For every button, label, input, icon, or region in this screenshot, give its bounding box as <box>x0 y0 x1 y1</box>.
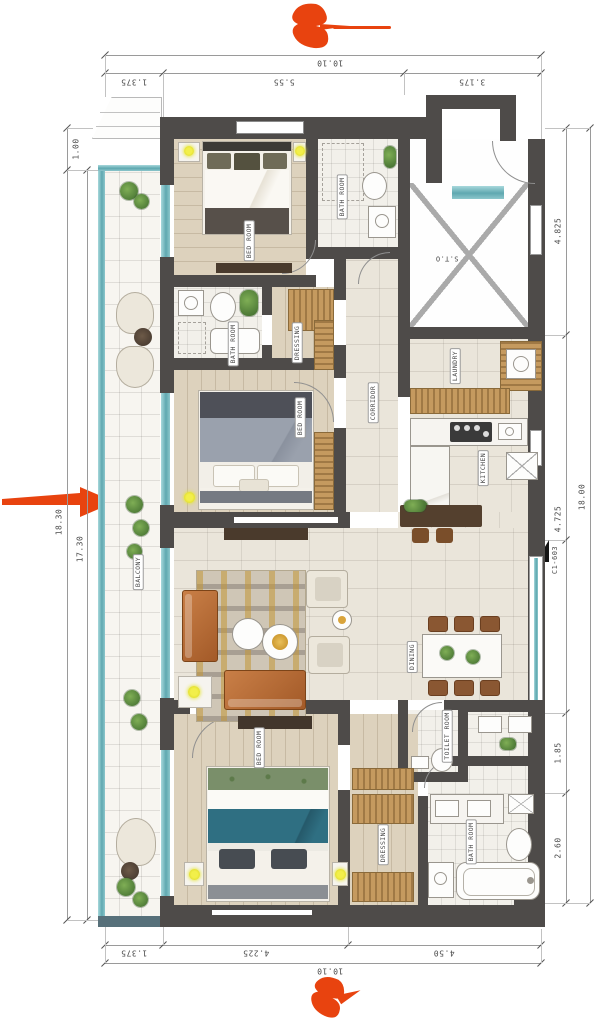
plant <box>134 194 149 209</box>
plant <box>440 646 454 660</box>
sofa-vertical <box>182 590 218 662</box>
lamp <box>184 492 195 503</box>
toilet1 <box>362 172 387 200</box>
dim-bottom-seg1: 1.375 <box>121 949 148 958</box>
dim-right-overall: 18.00 <box>578 484 587 511</box>
toilet-label: TOILET ROOM <box>442 709 453 762</box>
tv-console-bed3 <box>238 716 312 729</box>
dining-chair <box>428 680 448 696</box>
wardrobe <box>352 794 414 824</box>
entry-glass <box>452 186 504 199</box>
kitchen-label: KITCHEN <box>478 450 489 486</box>
bedroom1-label: BED ROOM <box>244 221 255 262</box>
bar-stool <box>436 528 453 543</box>
duct-shaft <box>508 794 534 814</box>
dim-left-line-inner <box>87 170 88 920</box>
lamp <box>295 146 305 156</box>
dining-chair <box>480 616 500 632</box>
tv-console-living <box>224 528 308 540</box>
plant <box>133 520 149 536</box>
unit-code: C1-603 <box>551 546 559 574</box>
dim-top-seg2: 5.55 <box>273 78 294 87</box>
balcony-lounge-chair <box>116 818 156 866</box>
wardrobe <box>352 768 414 790</box>
plant <box>131 714 147 730</box>
dining-table <box>422 634 502 678</box>
sink3 <box>467 800 491 817</box>
shower2 <box>178 322 206 354</box>
plant <box>133 892 148 907</box>
bedroom2-label: BED ROOM <box>295 398 306 439</box>
wardrobe <box>352 872 414 902</box>
lamp <box>188 686 200 698</box>
tv-bed2 <box>234 517 338 523</box>
dining-chair <box>454 616 474 632</box>
bed3 <box>206 766 330 902</box>
door-arc-toilet <box>412 702 442 732</box>
balcony-end-cap <box>98 916 162 927</box>
plant <box>466 650 480 664</box>
floor-plan: 10.10 1.375 5.55 3.175 1.375 4.225 4.50 … <box>0 0 605 1024</box>
bar-stool <box>412 528 429 543</box>
window-bottom <box>212 910 312 915</box>
dim-left-outer: 18.30 <box>55 509 64 536</box>
dim-right-seg3: 1.85 <box>554 742 563 763</box>
storage-label: S.T.O <box>433 254 460 263</box>
dim-top-overall: 10.10 <box>317 59 344 68</box>
balcony-door-bed3 <box>161 750 170 898</box>
dining-chair <box>454 680 474 696</box>
dressing2-label: DRESSING <box>378 825 389 866</box>
balcony-lounge-chair <box>116 292 154 334</box>
bathtub <box>456 862 540 900</box>
bathroom2-label: BATH ROOM <box>228 322 239 367</box>
fridge <box>506 452 538 480</box>
laundry-label: LAUNDRY <box>450 348 461 384</box>
dim-bottom-segment-line <box>105 945 541 946</box>
dim-top-overall-line <box>105 55 541 56</box>
dining-chair <box>428 616 448 632</box>
kitchen-counter-left <box>410 446 450 508</box>
corridor-label: CORRIDOR <box>368 383 379 424</box>
wall-bottom <box>160 905 545 927</box>
coffee-table <box>232 618 264 650</box>
sink3 <box>435 800 459 817</box>
dim-top-segment-line <box>105 73 541 74</box>
plant <box>240 290 258 316</box>
toilet3 <box>506 828 532 861</box>
lamp <box>184 146 194 156</box>
vanity-sink <box>478 716 502 733</box>
wardrobe <box>314 320 334 370</box>
brand-logo-bottom <box>306 976 364 1022</box>
dim-top-seg1: 1.375 <box>121 78 148 87</box>
dressing1-label: DRESSING <box>292 323 303 364</box>
plant <box>500 738 516 750</box>
dim-right-seg4: 2.60 <box>554 837 563 858</box>
dim-right-overall-line <box>590 128 591 903</box>
dim-left-line-outer <box>67 128 68 920</box>
lamp <box>335 869 346 880</box>
vanity-sink <box>508 716 532 733</box>
wardrobe <box>314 432 334 510</box>
plant <box>384 146 396 168</box>
balcony-lounge-chair <box>116 346 154 388</box>
dim-bottom-overall-line <box>105 963 541 964</box>
bed1-console <box>216 263 292 273</box>
brand-logo-antenna <box>333 26 391 29</box>
dim-top-seg3: 3.175 <box>459 78 486 87</box>
sofa-horizontal <box>224 670 306 710</box>
plant <box>126 496 143 513</box>
balcony-glass-top <box>98 165 162 171</box>
dining-chair <box>480 680 500 696</box>
balcony-door-bed1 <box>161 185 170 257</box>
dim-right-seg2: 4.725 <box>554 506 563 533</box>
toilet2 <box>210 292 236 322</box>
kitchen-counter-wood <box>410 388 510 414</box>
dim-bottom-overall: 10.10 <box>317 967 344 976</box>
dim-right-segment-line <box>566 128 567 903</box>
balcony-door-bed2 <box>161 393 170 505</box>
dim-left-inner: 17.30 <box>76 536 85 563</box>
stove <box>450 422 492 442</box>
bathroom3-label: BATH ROOM <box>466 820 477 865</box>
plant <box>124 690 140 706</box>
ac-ledge <box>92 97 162 139</box>
window-top <box>236 121 304 134</box>
lamp <box>189 869 200 880</box>
balcony-glass-rail <box>98 170 105 920</box>
window-right-1 <box>530 205 542 255</box>
dim-right-seg1: 4.825 <box>554 218 563 245</box>
balcony-door-living <box>161 548 170 698</box>
bedroom3-label: BED ROOM <box>254 728 265 769</box>
plant <box>404 500 426 512</box>
balcony-side-table <box>134 328 152 346</box>
dim-bottom-seg2: 4.225 <box>243 949 270 958</box>
armchair <box>306 570 348 608</box>
balcony-label: BALCONY <box>133 554 144 590</box>
armchair <box>308 636 350 674</box>
bathroom1-label: BATH ROOM <box>337 175 348 220</box>
dim-bottom-seg3: 4.50 <box>433 949 454 958</box>
storage-cross-lines <box>410 183 528 327</box>
plant <box>117 878 135 896</box>
dim-left-small: 1.00 <box>72 138 81 159</box>
dining-label: DINING <box>407 641 418 673</box>
